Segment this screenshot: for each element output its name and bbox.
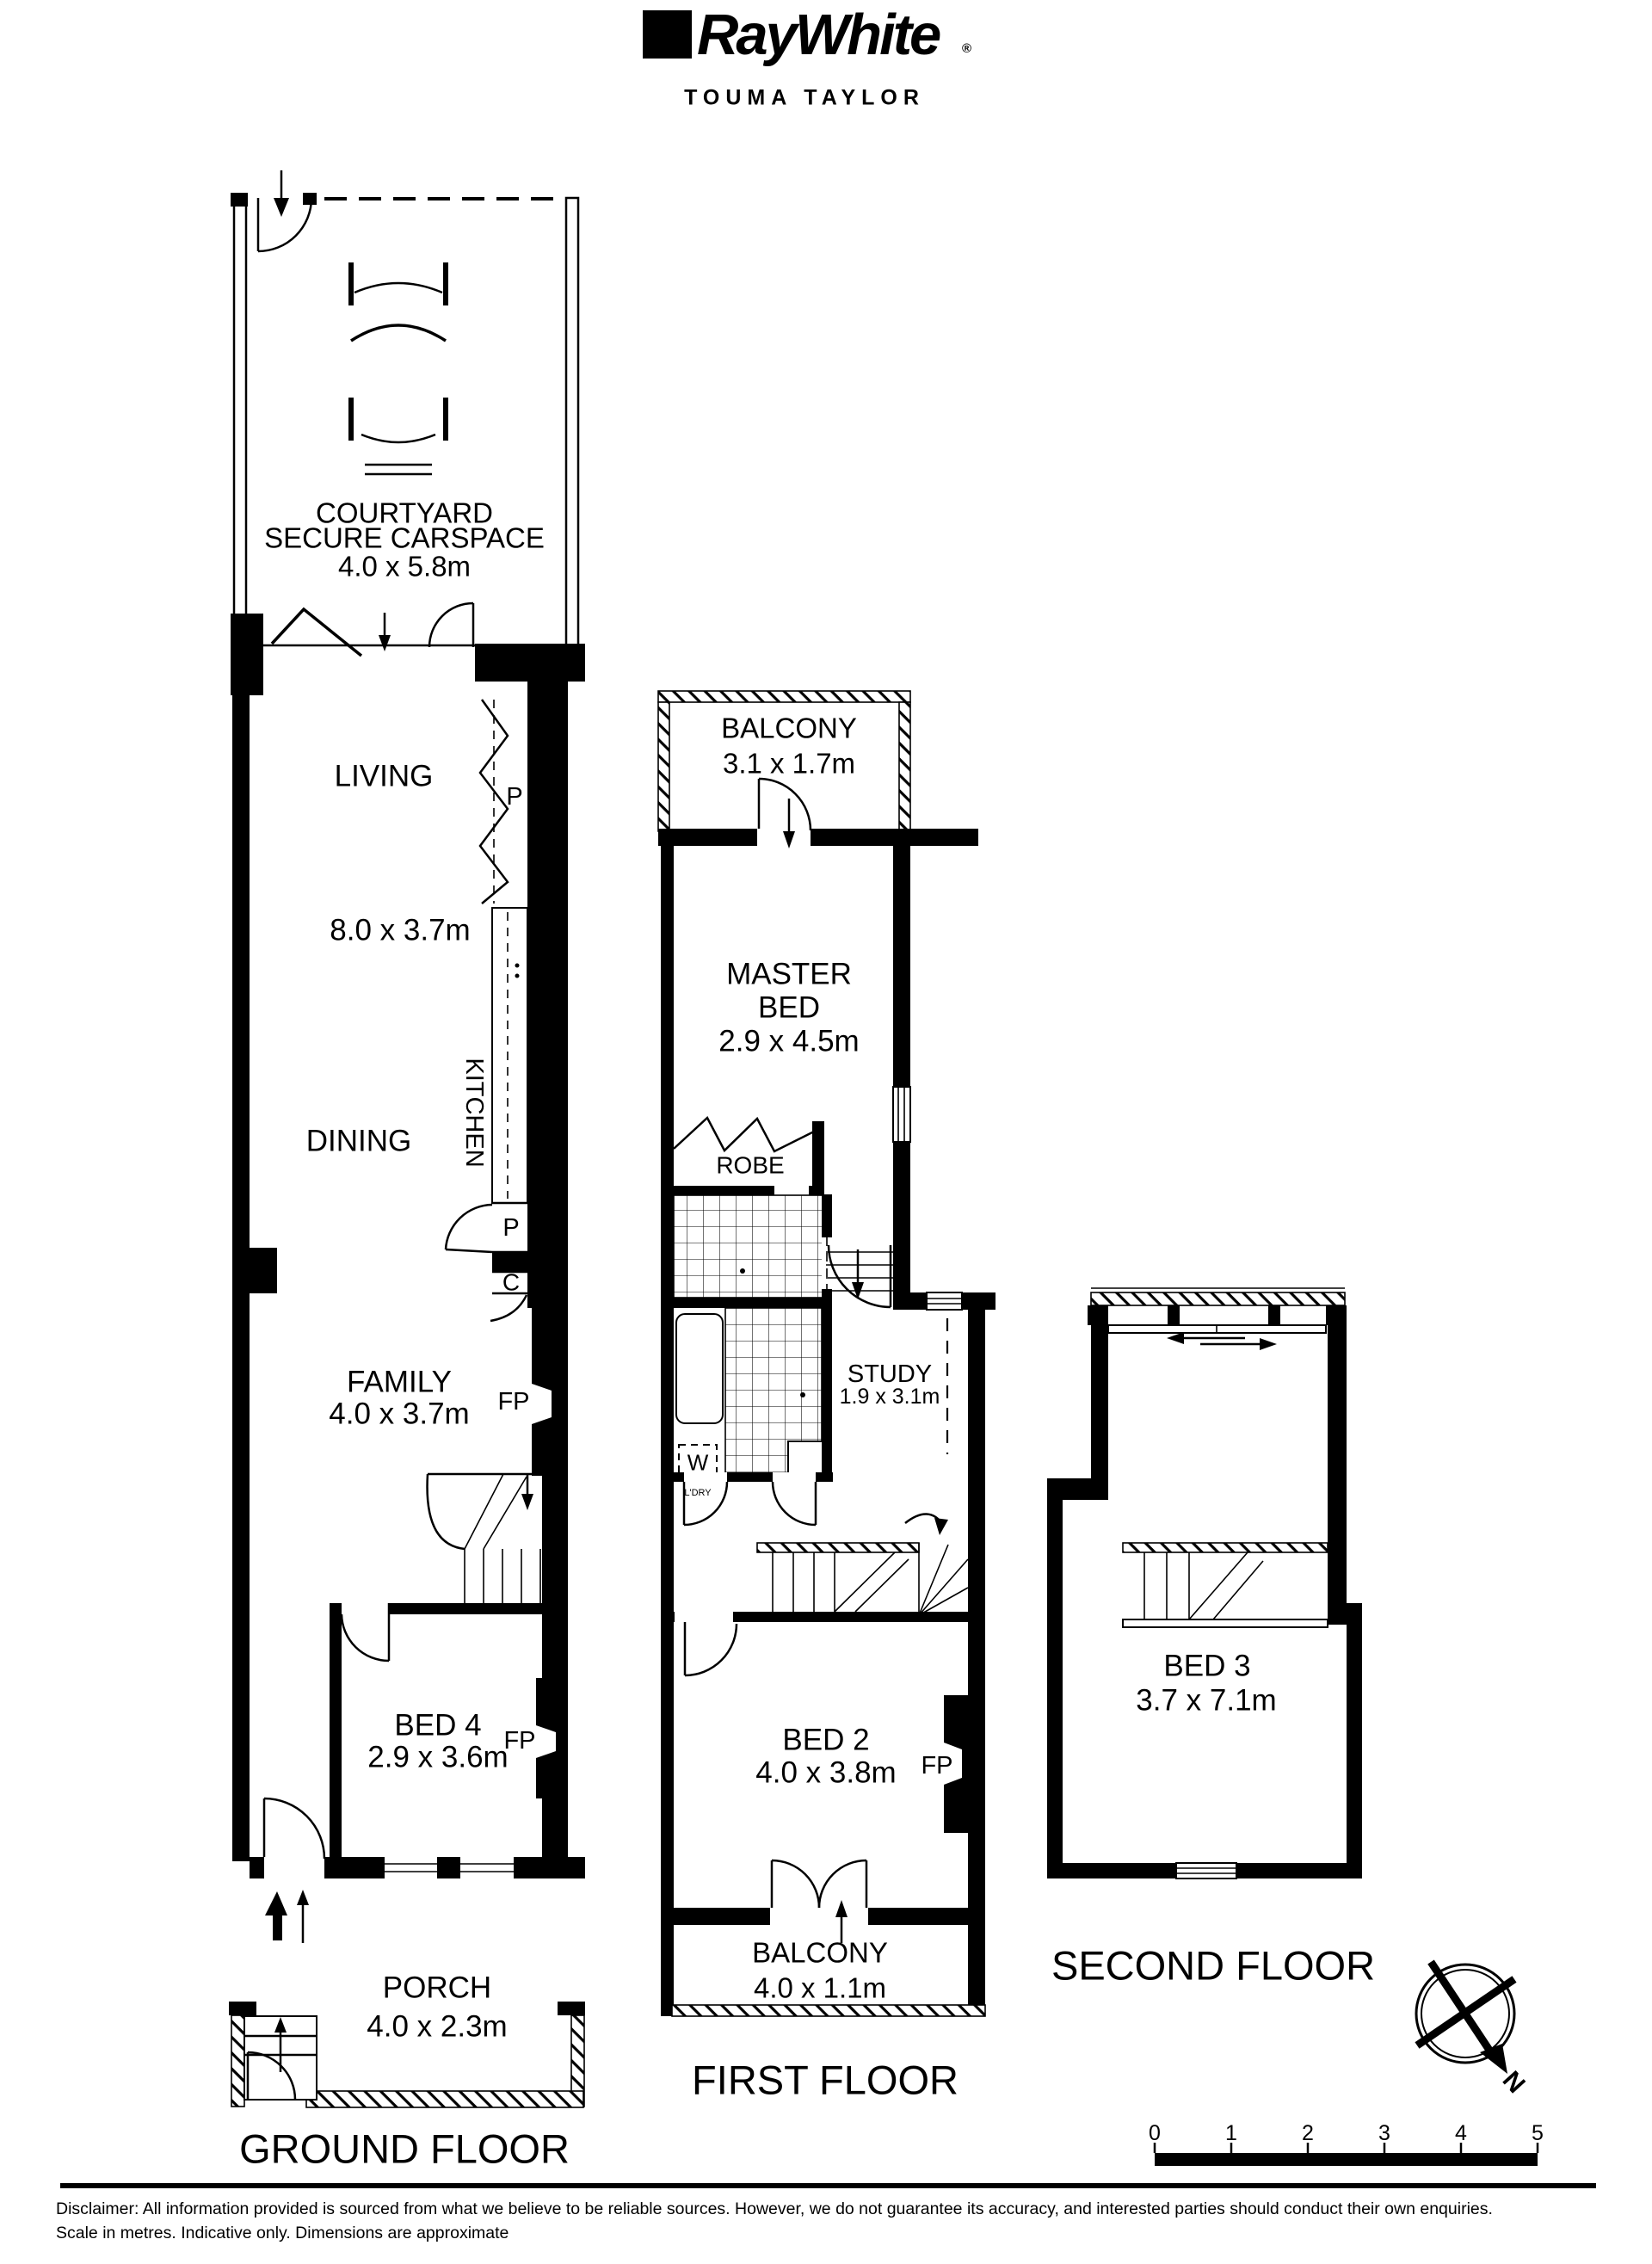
balcony-top-label: BALCONY bbox=[721, 714, 857, 744]
balcony-bottom-dims: 4.0 x 1.1m bbox=[754, 1974, 886, 2004]
floorplan-page: RayWhite ® TOUMA TAYLOR bbox=[0, 0, 1652, 2264]
car-icon bbox=[328, 217, 469, 482]
disclaimer-line-2: Scale in metres. Indicative only. Dimens… bbox=[56, 2224, 509, 2243]
bed3-label: BED 3 bbox=[1163, 1651, 1250, 1683]
second-floor-plan bbox=[1047, 1288, 1362, 1878]
family-label: FAMILY bbox=[347, 1367, 452, 1399]
study-dims: 1.9 x 3.1m bbox=[840, 1385, 940, 1408]
scale-bar bbox=[1155, 2143, 1538, 2166]
scale-tick-5: 5 bbox=[1532, 2122, 1544, 2144]
balcony-bottom-label: BALCONY bbox=[752, 1939, 888, 1969]
ground-floor-title: GROUND FLOOR bbox=[239, 2127, 570, 2169]
floorplan-linework bbox=[0, 0, 1652, 2264]
courtyard-dims: 4.0 x 5.8m bbox=[338, 552, 471, 583]
scale-tick-3: 3 bbox=[1378, 2122, 1390, 2144]
living-dims: 8.0 x 3.7m bbox=[330, 916, 470, 947]
bed2-label: BED 2 bbox=[782, 1725, 869, 1757]
first-floor-stairs bbox=[757, 1514, 968, 1615]
courtyard-label-2: SECURE CARSPACE bbox=[264, 524, 545, 554]
bed3-dims: 3.7 x 7.1m bbox=[1136, 1686, 1276, 1718]
laundry-label: L'DRY bbox=[684, 1489, 711, 1499]
family-dims: 4.0 x 3.7m bbox=[329, 1399, 469, 1431]
scale-tick-2: 2 bbox=[1302, 2122, 1314, 2144]
study-label: STUDY bbox=[848, 1361, 932, 1387]
scale-tick-1: 1 bbox=[1225, 2122, 1237, 2144]
washer-label: W bbox=[687, 1451, 709, 1474]
master-bed-dims: 2.9 x 4.5m bbox=[718, 1027, 859, 1058]
cupboard-label: C bbox=[502, 1269, 520, 1294]
pantry-label-passage: P bbox=[506, 784, 522, 810]
disclaimer-line-1: Disclaimer: All information provided is … bbox=[56, 2199, 1493, 2219]
living-label: LIVING bbox=[335, 762, 434, 793]
first-floor-title: FIRST FLOOR bbox=[692, 2058, 959, 2101]
sliding-window-arrows bbox=[1167, 1332, 1277, 1350]
porch-label: PORCH bbox=[383, 1973, 491, 2005]
bed4-dims: 2.9 x 3.6m bbox=[367, 1743, 508, 1774]
dining-label: DINING bbox=[306, 1126, 412, 1158]
porch-dims: 4.0 x 2.3m bbox=[367, 2012, 507, 2044]
bed4-label: BED 4 bbox=[394, 1711, 481, 1743]
kitchen-label: KITCHEN bbox=[461, 1058, 487, 1167]
gate-door bbox=[258, 170, 311, 251]
scale-tick-4: 4 bbox=[1455, 2122, 1467, 2144]
master-bed-label: MASTER bbox=[726, 959, 852, 991]
bed4-fireplace-label: FP bbox=[503, 1728, 535, 1754]
compass-icon bbox=[1416, 1962, 1514, 2074]
second-floor-title: SECOND FLOOR bbox=[1051, 1944, 1375, 1986]
second-floor-stairs bbox=[1123, 1543, 1328, 1627]
scale-tick-0: 0 bbox=[1149, 2122, 1161, 2144]
master-bed-label-2: BED bbox=[758, 993, 820, 1025]
balcony-top-dims: 3.1 x 1.7m bbox=[723, 750, 855, 780]
entry-arrow bbox=[265, 1890, 309, 1943]
bed2-fireplace-label: FP bbox=[921, 1753, 952, 1779]
footer-divider bbox=[60, 2183, 1596, 2188]
family-fireplace-label: FP bbox=[497, 1389, 529, 1415]
bed2-dims: 4.0 x 3.8m bbox=[755, 1758, 896, 1790]
robe-label: ROBE bbox=[716, 1152, 784, 1177]
first-floor-plan bbox=[658, 691, 996, 2016]
pantry-label: P bbox=[502, 1215, 519, 1241]
